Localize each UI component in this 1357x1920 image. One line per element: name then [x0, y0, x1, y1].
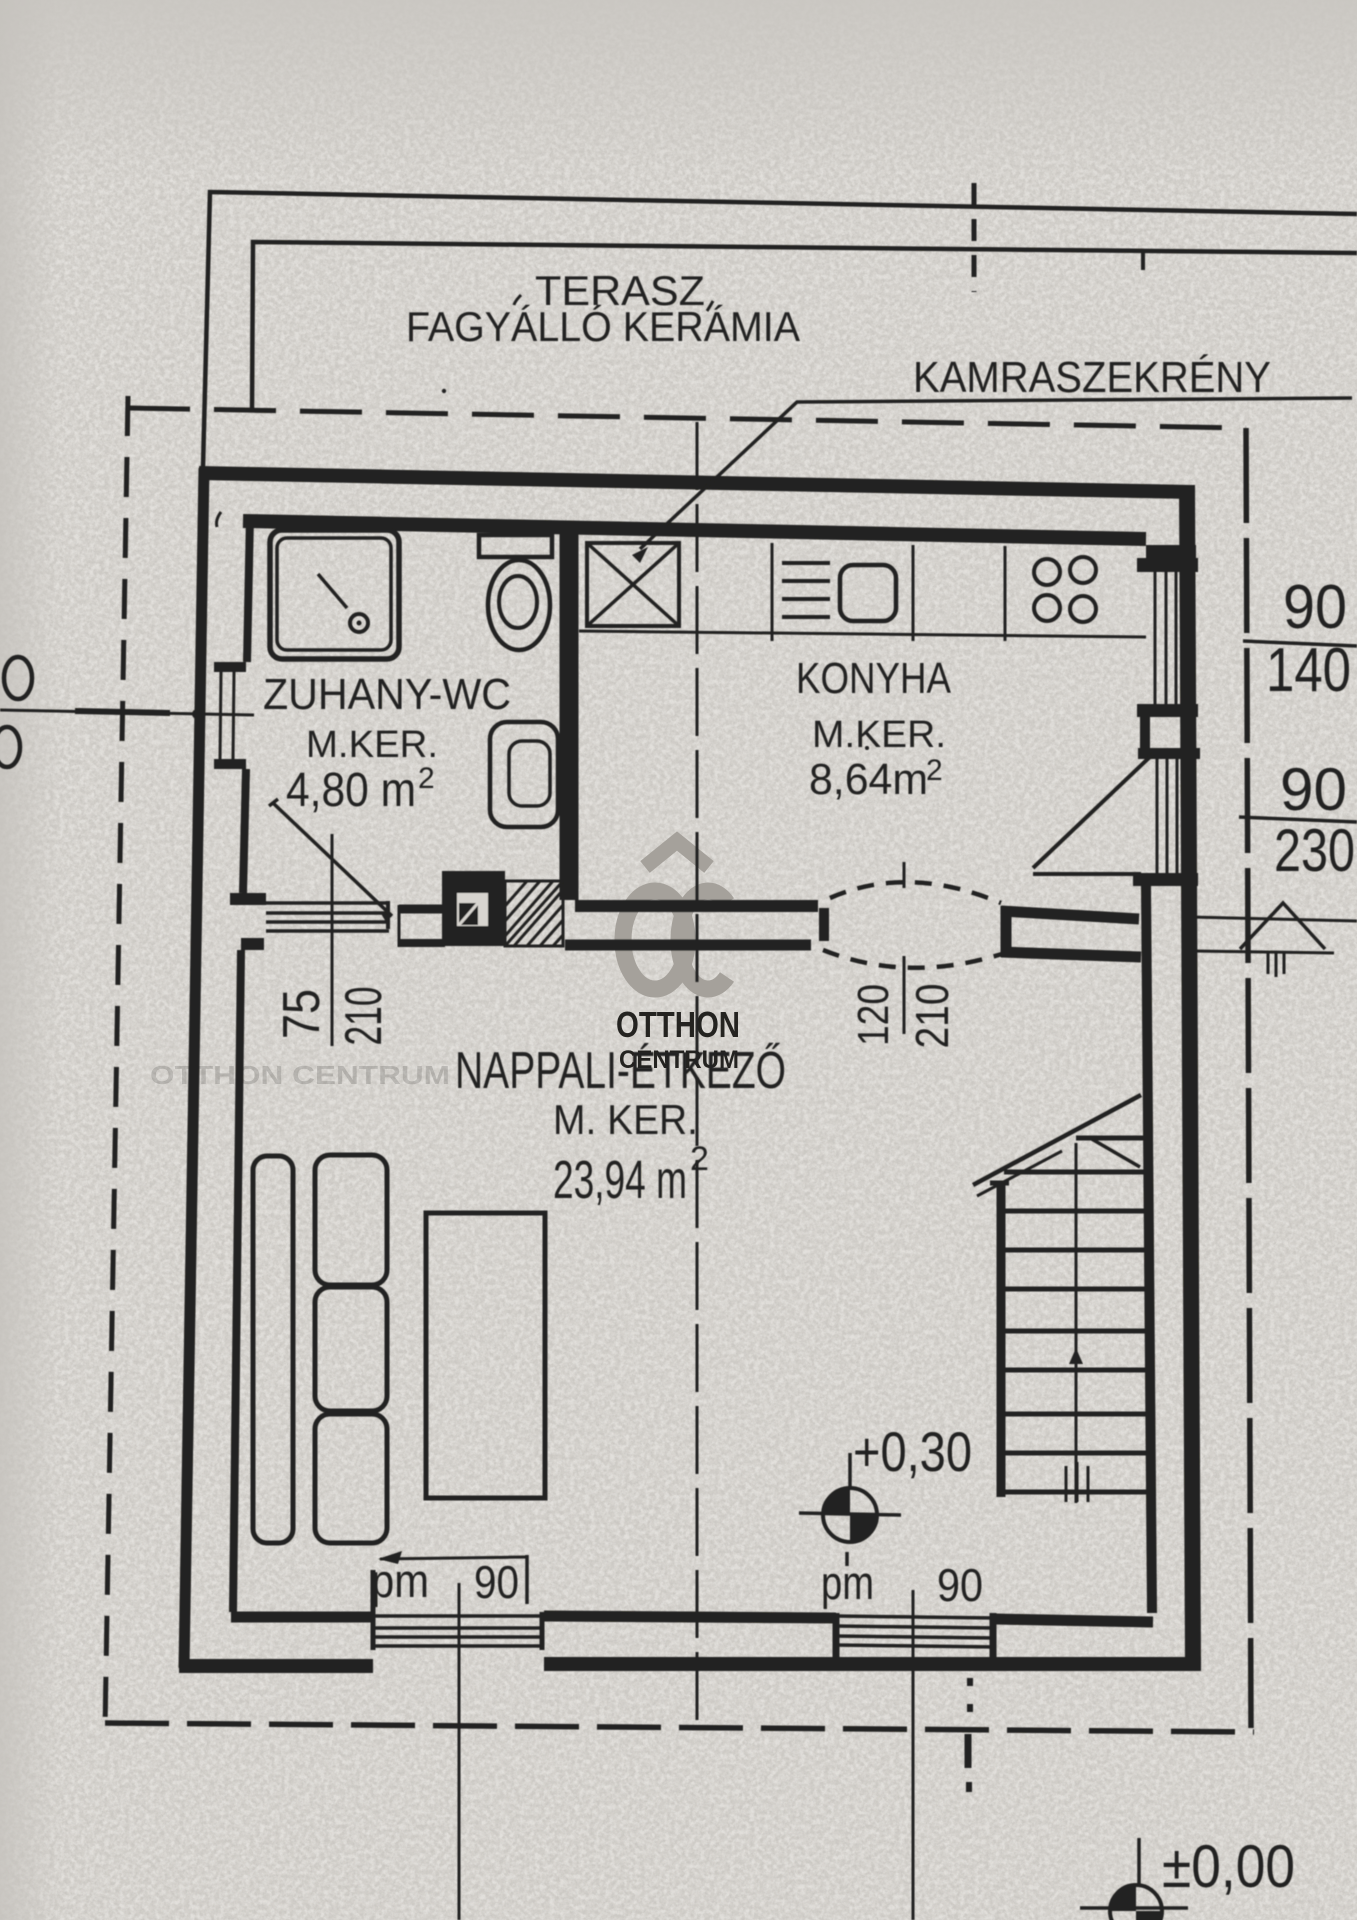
svg-text:2: 2	[418, 762, 435, 795]
svg-text:140: 140	[1266, 636, 1351, 705]
svg-text:4,80 m: 4,80 m	[286, 764, 416, 817]
svg-text:±0,00: ±0,00	[1162, 1833, 1295, 1900]
svg-text:NAPPALI-ÉTKEZŐ: NAPPALI-ÉTKEZŐ	[455, 1042, 786, 1100]
svg-text:ZUHANY-WC: ZUHANY-WC	[263, 670, 511, 719]
svg-text:75: 75	[273, 989, 331, 1039]
svg-text:230: 230	[1274, 817, 1355, 884]
svg-text:2: 2	[690, 1140, 709, 1178]
svg-text:210: 210	[906, 984, 958, 1049]
svg-text:+0,30: +0,30	[853, 1420, 972, 1483]
svg-text:M. KER.: M. KER.	[553, 1096, 698, 1143]
svg-text:120: 120	[849, 984, 898, 1046]
svg-text:210: 210	[335, 987, 393, 1046]
svg-text:23,94 m: 23,94 m	[553, 1150, 687, 1210]
svg-text:OTTHON: OTTHON	[616, 1004, 740, 1045]
svg-text:pm: pm	[821, 1556, 874, 1609]
svg-text:8,64m: 8,64m	[809, 755, 928, 804]
svg-text:pm: pm	[371, 1554, 429, 1607]
svg-text:90: 90	[1280, 756, 1347, 823]
svg-text:M.KER.: M.KER.	[306, 724, 438, 766]
svg-text:KONYHA: KONYHA	[796, 654, 952, 703]
svg-text:KAMRASZEKRÉNY: KAMRASZEKRÉNY	[913, 353, 1271, 402]
svg-text:90: 90	[937, 1559, 983, 1611]
svg-text:M.KER.: M.KER.	[812, 714, 946, 756]
svg-text:90: 90	[474, 1556, 519, 1608]
svg-text:90: 90	[1283, 573, 1347, 642]
svg-text:2: 2	[926, 754, 943, 787]
svg-text:FAGYÁLLÓ KERÁMIA: FAGYÁLLÓ KERÁMIA	[406, 303, 800, 350]
